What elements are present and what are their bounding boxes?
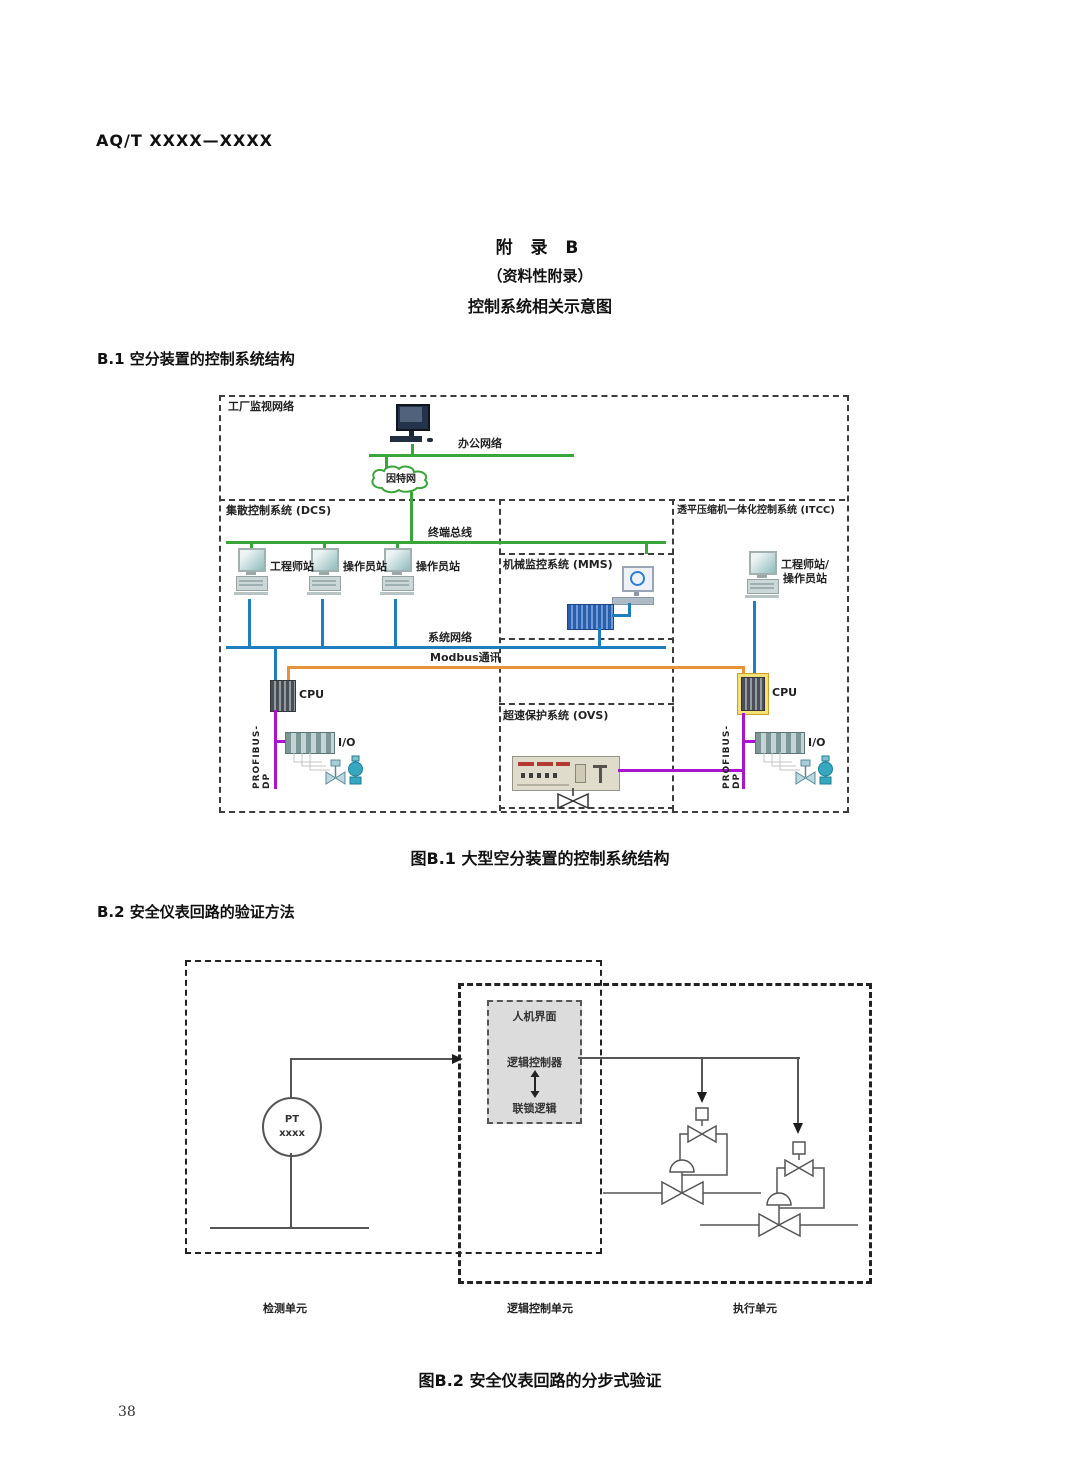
pt-up-line	[290, 1058, 292, 1097]
detect-unit-label: 检测单元	[235, 1300, 335, 1316]
section-b2-heading: B.2 安全仪表回路的验证方法	[97, 901, 295, 922]
bus-drop-mms	[645, 544, 648, 554]
logic-out-line	[578, 1057, 800, 1059]
itcc-station-label-2: 操作员站	[783, 572, 827, 586]
profibus-right-line	[742, 713, 745, 789]
operator-station-label-2: 操作员站	[416, 560, 460, 574]
terminal-bus-line	[226, 541, 666, 544]
office-computer-icon	[390, 404, 434, 446]
io-left-stub	[277, 740, 285, 743]
section-divider-line	[219, 499, 845, 501]
mms-server-icon	[567, 604, 614, 630]
document-page: AQ/T XXXX—XXXX 附 录 B （资料性附录） 控制系统相关示意图 B…	[0, 0, 1080, 1461]
ovs-label: 超速保护系统 (OVS)	[503, 709, 608, 723]
doc-code: AQ/T XXXX—XXXX	[96, 131, 273, 150]
itcc-label: 透平压缩机一体化控制系统 (ITCC)	[677, 504, 835, 517]
valve1-drop-line	[701, 1057, 703, 1092]
office-network-line	[369, 454, 574, 457]
field-instruments-right-icon	[760, 752, 838, 792]
profibus-left-label: PROFIBUS-DP	[252, 715, 272, 789]
itcc-station-to-cpu-line	[753, 601, 756, 673]
office-network-label: 办公网络	[458, 437, 502, 451]
valve1-arrow-icon	[697, 1092, 707, 1103]
internet-label: 因特网	[368, 473, 434, 486]
figure-b2-caption: 图B.2 安全仪表回路的分步式验证	[0, 1367, 1080, 1391]
bidirectional-arrow-icon	[529, 1070, 541, 1098]
itcc-station-label-1: 工程师站/	[781, 558, 829, 572]
io-left-icon	[285, 732, 335, 754]
sysbus-to-cpu-line	[274, 649, 277, 680]
pressure-transmitter-icon: PT xxxx	[262, 1097, 322, 1157]
cpu-right-icon	[741, 677, 765, 711]
section-b1-heading: B.1 空分装置的控制系统结构	[97, 348, 295, 369]
pt-number: xxxx	[279, 1127, 305, 1141]
process-base-line	[210, 1227, 369, 1229]
server-pc-link-v	[628, 603, 631, 615]
appendix-subtitle: （资料性附录）	[0, 265, 1080, 286]
modbus-line	[287, 666, 745, 669]
ws3-to-sysbus-line	[394, 599, 397, 646]
modbus-label: Modbus通讯	[430, 651, 501, 665]
terminal-bus-label: 终端总线	[428, 526, 472, 540]
appendix-title-block: 附 录 B （资料性附录） 控制系统相关示意图	[0, 233, 1080, 317]
internet-to-bus-line	[410, 492, 413, 541]
profibus-left-line	[274, 710, 277, 789]
ws1-to-sysbus-line	[248, 599, 251, 646]
ovs-box-top	[499, 703, 674, 705]
appendix-title: 附 录 B	[0, 233, 1080, 258]
cpu-right-frame	[737, 673, 769, 715]
pt-to-logic-line	[290, 1058, 453, 1060]
cpu-left-label: CPU	[299, 688, 324, 702]
ws2-to-sysbus-line	[321, 599, 324, 646]
itcc-separator-line	[672, 499, 674, 811]
io-right-icon	[755, 732, 805, 754]
io-right-label: I/O	[808, 736, 825, 750]
logic-unit-label: 逻辑控制单元	[475, 1300, 605, 1316]
hmi-label: 人机界面	[489, 1008, 580, 1024]
mms-computer-icon	[612, 566, 654, 604]
mms-box-bottom	[499, 638, 674, 640]
logic-solver-box: 人机界面 逻辑控制器 联锁逻辑	[487, 1000, 582, 1124]
profibus-right-label: PROFIBUS-DP	[722, 715, 742, 789]
ovs-panel-icon	[512, 756, 620, 791]
valve2-arrow-icon	[793, 1123, 803, 1134]
actuated-valve-icon-2	[693, 1135, 865, 1245]
figure-b2: 人机界面 逻辑控制器 联锁逻辑 PT xxxx	[150, 950, 930, 1330]
modbus-left-drop	[287, 669, 290, 680]
appendix-caption: 控制系统相关示意图	[0, 293, 1080, 317]
exec-unit-label: 执行单元	[700, 1300, 810, 1316]
pc-to-office-line	[411, 444, 414, 454]
valve2-drop-line	[797, 1057, 799, 1123]
figure-b1: 工厂监视网络 集散控制系统 (DCS) 透平压缩机一体化控制系统 (ITCC) …	[200, 390, 860, 831]
page-number: 38	[118, 1404, 136, 1420]
engineer-station-label: 工程师站	[270, 560, 314, 574]
signal-arrow-icon	[452, 1054, 463, 1064]
system-network-label: 系统网络	[428, 631, 472, 645]
cpu-left-icon	[270, 680, 296, 712]
pt-tag: PT	[285, 1113, 299, 1127]
figure-b1-caption: 图B.1 大型空分装置的控制系统结构	[0, 845, 1080, 869]
itcc-station-icon	[747, 551, 779, 601]
pt-down-line	[290, 1153, 292, 1227]
logic-controller-label: 逻辑控制器	[489, 1054, 580, 1070]
dcs-label: 集散控制系统 (DCS)	[226, 504, 331, 518]
field-instruments-left-icon	[290, 752, 368, 792]
io-right-stub	[745, 740, 755, 743]
cpu-right-label: CPU	[772, 686, 797, 700]
plant-network-label: 工厂监视网络	[228, 400, 294, 414]
engineer-station-icon	[236, 548, 268, 598]
io-left-label: I/O	[338, 736, 355, 750]
server-to-sysbus-line	[598, 628, 601, 646]
operator-station-label-1: 操作员站	[343, 560, 387, 574]
interlock-logic-label: 联锁逻辑	[489, 1100, 580, 1116]
mms-label: 机械监控系统 (MMS)	[503, 558, 613, 572]
system-network-line	[226, 646, 666, 649]
ovs-valve-icon	[554, 788, 592, 810]
